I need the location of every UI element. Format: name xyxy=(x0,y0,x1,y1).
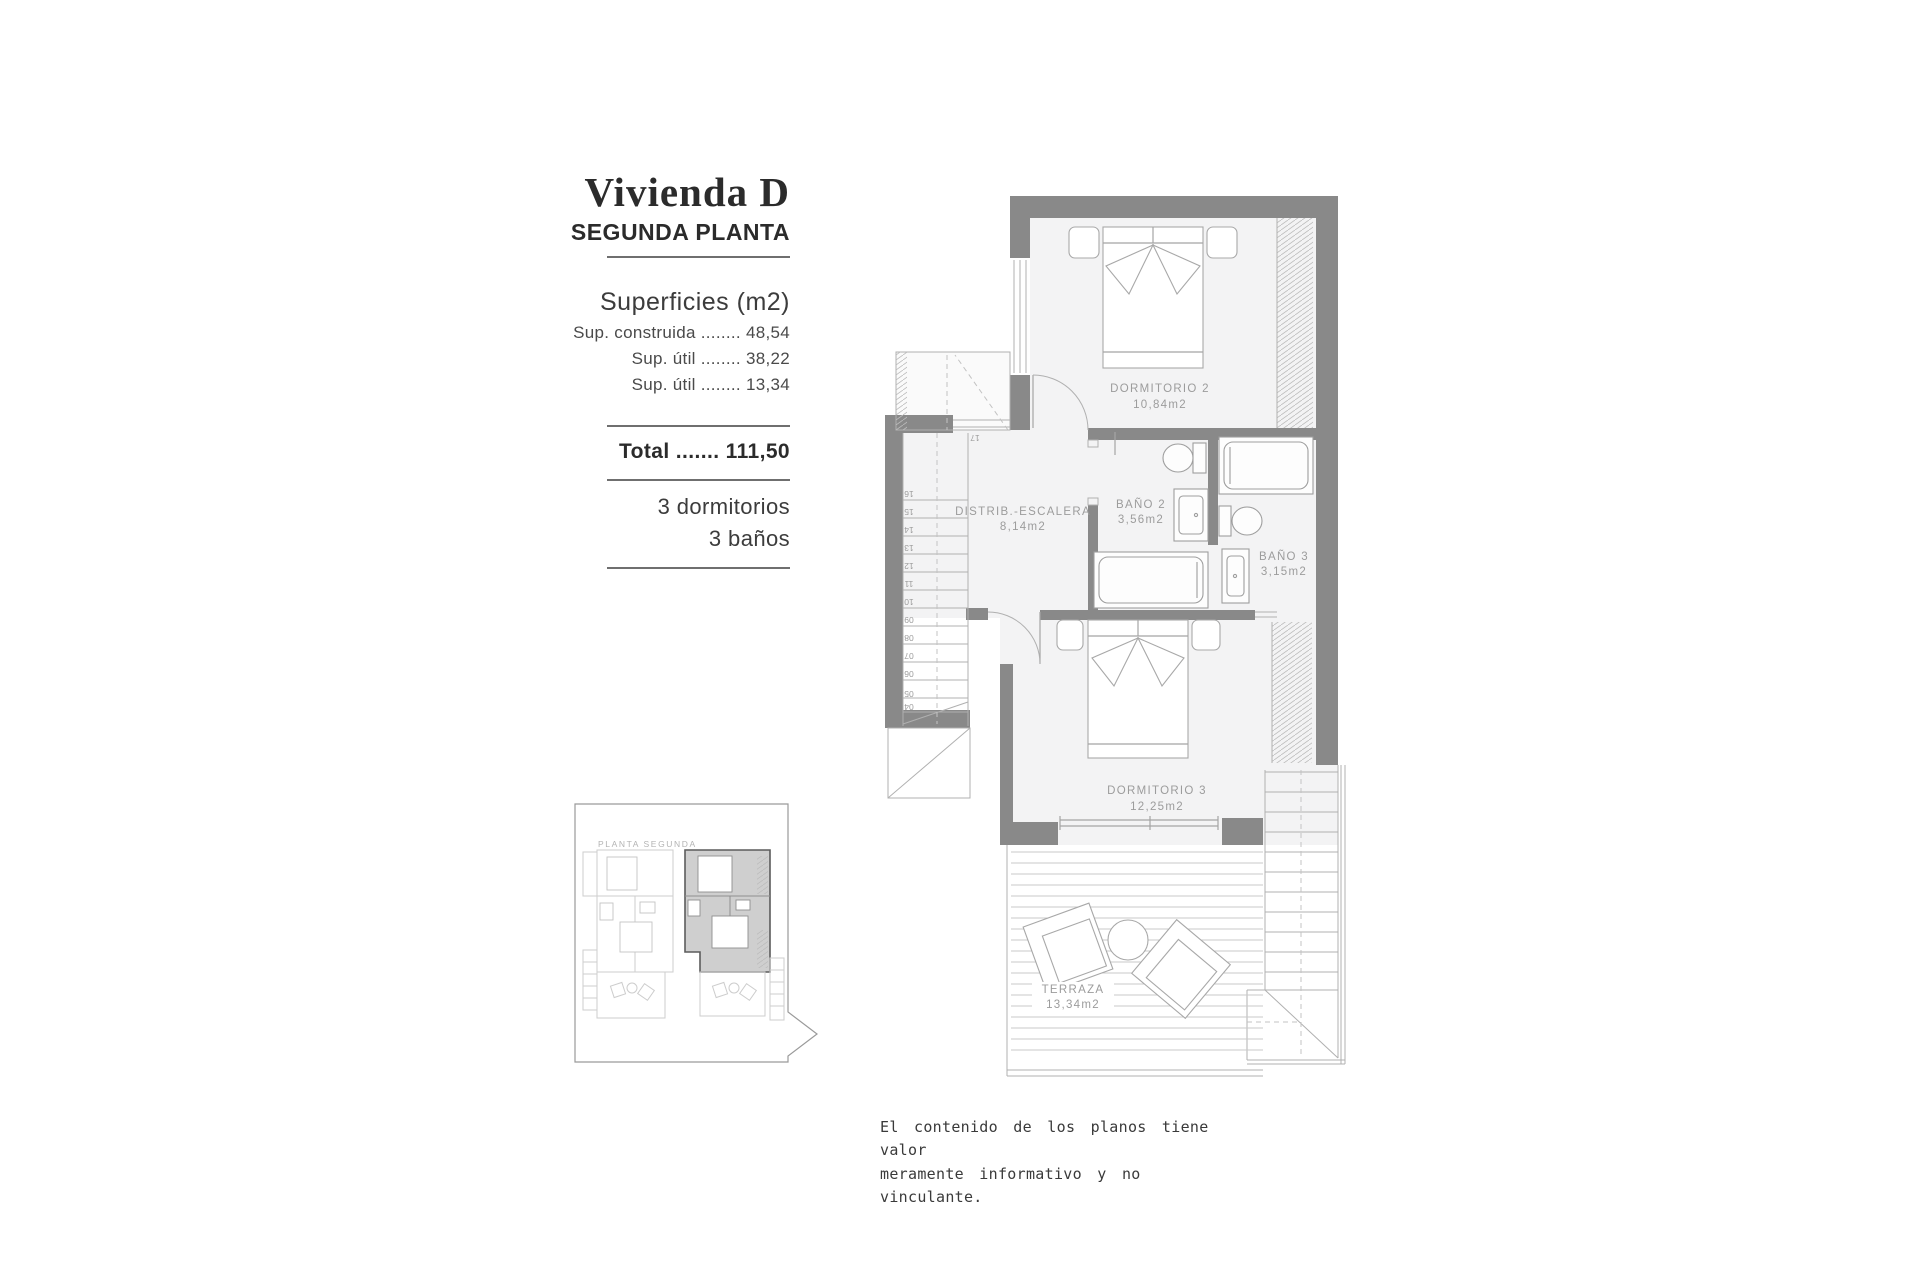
room-area-bano-3: 3,15m2 xyxy=(1261,566,1307,578)
title-block: Vivienda D SEGUNDA PLANTA Superficies (m… xyxy=(420,168,790,569)
stair-number: 05 xyxy=(904,689,914,699)
room-area-distribuidor: 8,14m2 xyxy=(1000,521,1046,533)
room-area-terraza: 13,34m2 xyxy=(1046,999,1100,1011)
stair-number: 09 xyxy=(904,615,914,625)
superficies-line: Sup. útil ........ 13,34 xyxy=(420,375,790,395)
divider xyxy=(607,567,790,569)
stair-number: 10 xyxy=(904,597,914,607)
stair-number: 16 xyxy=(904,489,914,499)
room-label-terraza: TERRAZA xyxy=(1042,984,1105,996)
stair-number: 14 xyxy=(904,525,914,535)
superficies-heading: Superficies (m2) xyxy=(420,288,790,317)
disclaimer: El contenido de los planos tiene valor m… xyxy=(880,1116,1210,1209)
total-line: Total ....... 111,50 xyxy=(420,440,790,464)
stair-number: 06 xyxy=(904,669,914,679)
terrace xyxy=(1007,845,1263,1076)
stair-number: 07 xyxy=(904,651,914,661)
room-label-bano-3: BAÑO 3 xyxy=(1259,550,1309,563)
feature-banos: 3 baños xyxy=(420,526,790,552)
room-label-bano-2: BAÑO 2 xyxy=(1116,498,1166,511)
room-label-dormitorio-3: DORMITORIO 3 xyxy=(1107,785,1207,797)
page-title: Vivienda D xyxy=(420,168,790,216)
stair-number: 08 xyxy=(904,633,914,643)
disclaimer-line: El contenido de los planos tiene valor xyxy=(880,1116,1210,1163)
divider xyxy=(607,425,790,427)
key-plan-label: PLANTA SEGUNDA xyxy=(598,839,697,849)
dormitorio-3-furniture xyxy=(1057,620,1312,763)
superficies-line: Sup. construida ........ 48,54 xyxy=(420,323,790,343)
room-label-dormitorio-2: DORMITORIO 2 xyxy=(1110,383,1210,395)
stair-number: 15 xyxy=(904,507,914,517)
feature-dormitorios: 3 dormitorios xyxy=(420,494,790,520)
stair-number: 04 xyxy=(904,702,914,712)
divider xyxy=(607,256,790,258)
floor-plan-drawing: 17 16 15 14 13 12 11 10 09 08 07 06 05 0… xyxy=(850,180,1410,1100)
plan-sheet: Vivienda D SEGUNDA PLANTA Superficies (m… xyxy=(0,0,1920,1280)
disclaimer-line: meramente informativo y no vinculante. xyxy=(880,1163,1210,1210)
key-plan: PLANTA SEGUNDA xyxy=(555,790,835,1080)
divider xyxy=(607,479,790,481)
room-area-bano-2: 3,56m2 xyxy=(1118,514,1164,526)
page-subtitle: SEGUNDA PLANTA xyxy=(420,219,790,246)
stair-number: 12 xyxy=(904,561,914,571)
superficies-line: Sup. útil ........ 38,22 xyxy=(420,349,790,369)
room-area-dormitorio-3: 12,25m2 xyxy=(1130,801,1184,813)
room-label-distribuidor: DISTRIB.-ESCALERA xyxy=(955,506,1091,518)
stair-number: 17 xyxy=(970,433,980,443)
stair-number: 11 xyxy=(904,579,913,589)
room-area-dormitorio-2: 10,84m2 xyxy=(1133,399,1187,411)
stair-number: 13 xyxy=(904,543,914,553)
